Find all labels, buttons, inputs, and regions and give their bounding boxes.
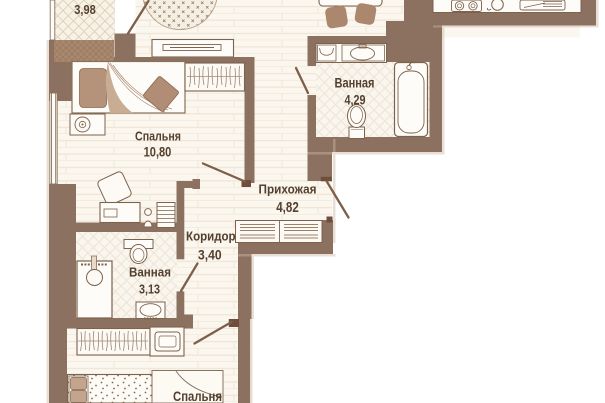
svg-text:4,82: 4,82	[276, 200, 299, 216]
svg-text:Коридор: Коридор	[186, 230, 236, 244]
svg-text:3,13: 3,13	[139, 282, 160, 297]
svg-text:4,29: 4,29	[345, 93, 366, 108]
svg-text:3,40: 3,40	[198, 247, 222, 262]
svg-text:10,80: 10,80	[144, 145, 172, 160]
svg-text:Спальня: Спальня	[173, 389, 222, 403]
svg-text:Спальня: Спальня	[135, 128, 181, 143]
svg-text:Прихожая: Прихожая	[259, 182, 317, 197]
svg-text:3,98: 3,98	[74, 2, 96, 17]
svg-text:Ванная: Ванная	[129, 265, 171, 279]
svg-text:Ванная: Ванная	[335, 76, 375, 91]
